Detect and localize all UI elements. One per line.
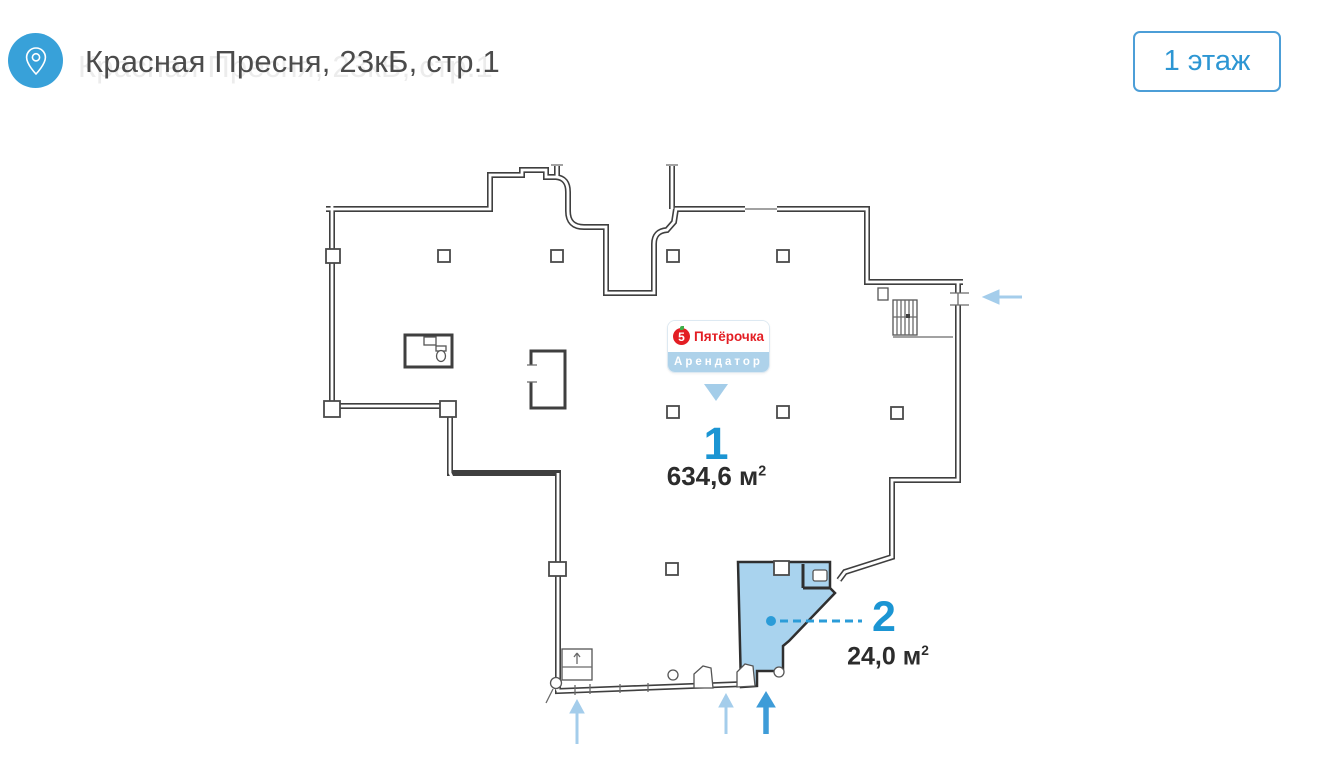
unit-1-area-sup: 2	[758, 463, 766, 479]
floor-selector-button[interactable]: 1 этаж	[1133, 31, 1281, 92]
floor-plan-drawing	[0, 0, 1339, 767]
stairwell	[878, 288, 969, 337]
unit-2-region[interactable]	[738, 562, 835, 687]
unit-1-number[interactable]: 1	[694, 421, 738, 466]
tenant-brand-name: Пятёрочка	[694, 329, 764, 344]
storage-room	[527, 351, 565, 408]
tenant-badge[interactable]: 5 Пятёрочка Арендатор	[667, 320, 770, 373]
unit-1-area: 634,6 м2	[639, 463, 794, 489]
unit-2-area-value: 24,0 м	[847, 642, 921, 670]
elevator-box	[562, 649, 592, 680]
unit-2	[738, 561, 835, 687]
bottom-doors	[546, 664, 755, 703]
page-title: Красная Пресня, 23кБ, стр.1	[85, 44, 500, 80]
columns	[324, 249, 903, 576]
entrance-arrow-icons	[570, 290, 1022, 744]
floor-plan-page: Красная Пресня, 23кБ, стр.1 1 этаж	[0, 0, 1339, 767]
pyaterochka-logo-icon: 5	[673, 328, 690, 345]
unit-2-number[interactable]: 2	[862, 596, 906, 639]
tenant-role-label: Арендатор	[668, 352, 769, 372]
unit-2-area: 24,0 м2	[823, 644, 953, 669]
tenant-brand-row: 5 Пятёрочка	[668, 321, 769, 352]
unit-1-area-value: 634,6 м	[667, 461, 759, 491]
location-pin-icon	[8, 33, 63, 88]
wc-room	[405, 335, 452, 367]
unit-2-area-sup: 2	[921, 643, 929, 658]
badge-pointer-icon	[704, 384, 728, 401]
